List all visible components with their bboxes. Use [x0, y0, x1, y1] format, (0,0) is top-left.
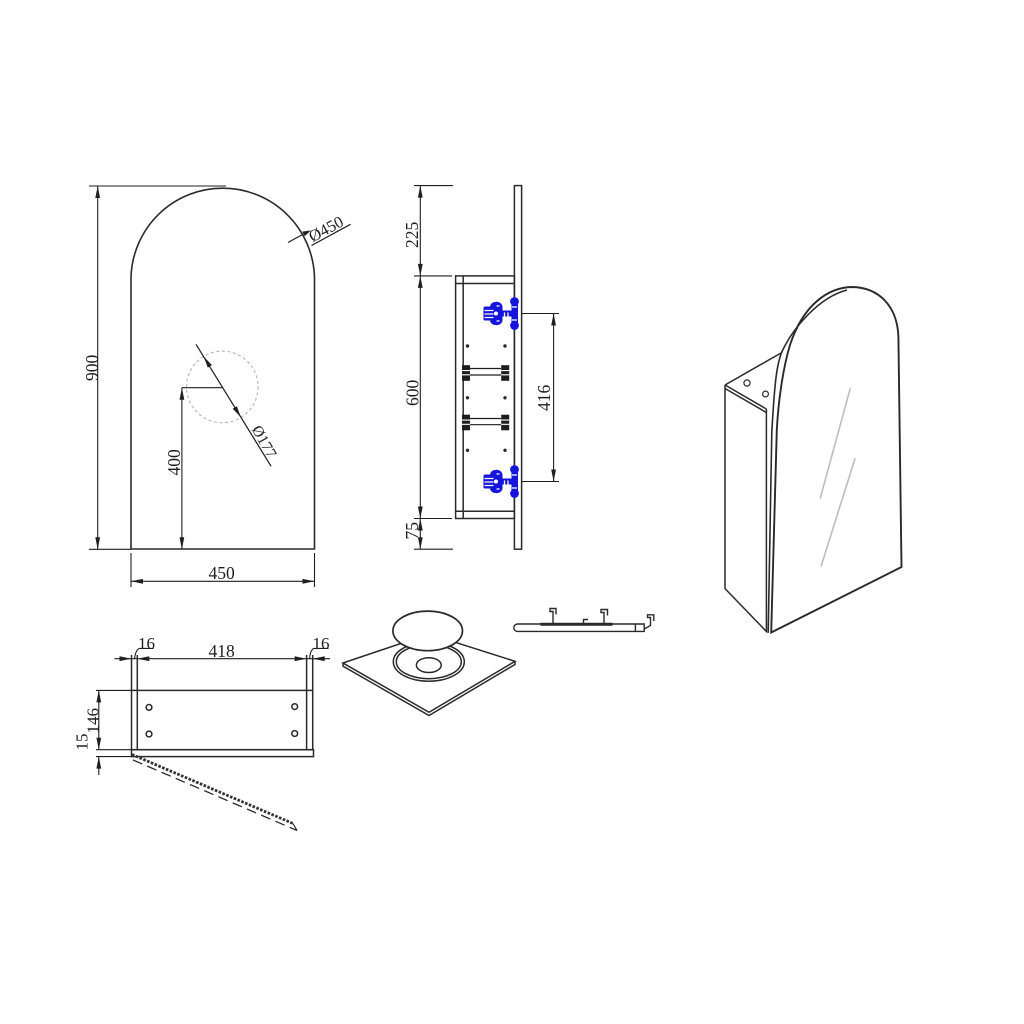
svg-text:600: 600	[403, 380, 423, 407]
svg-text:146: 146	[83, 708, 102, 734]
svg-text:225: 225	[402, 222, 422, 249]
svg-text:450: 450	[209, 563, 236, 583]
svg-text:Ø177: Ø177	[248, 423, 280, 462]
svg-text:416: 416	[534, 385, 554, 412]
svg-text:75: 75	[402, 522, 422, 540]
svg-text:16: 16	[313, 634, 330, 653]
svg-text:15: 15	[73, 734, 92, 751]
svg-text:Ø450: Ø450	[305, 212, 346, 246]
svg-text:418: 418	[209, 641, 236, 661]
svg-text:16: 16	[138, 634, 155, 653]
svg-text:400: 400	[164, 449, 184, 476]
svg-text:900: 900	[82, 355, 102, 382]
